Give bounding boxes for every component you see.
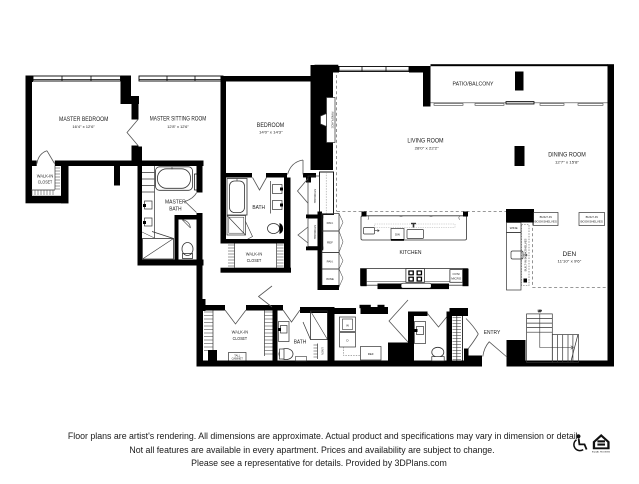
svg-text:WALK-IN: WALK-IN [246,252,263,257]
svg-text:Floor plans are artist's rende: Floor plans are artist's rendering. All … [68,431,580,441]
svg-text:BOOKSHELVES: BOOKSHELVES [535,220,557,224]
svg-text:CABINET: CABINET [232,357,244,361]
svg-text:DEN: DEN [563,251,577,258]
svg-text:MASTER BEDROOM: MASTER BEDROOM [59,116,108,123]
svg-text:WALK-IN: WALK-IN [232,330,249,335]
svg-text:BATH: BATH [169,206,182,212]
svg-text:BOOKSHELVES: BOOKSHELVES [581,220,603,224]
svg-text:LIVING ROOM: LIVING ROOM [407,138,443,145]
svg-text:16'4" x 12'6": 16'4" x 12'6" [72,124,95,129]
svg-text:DW: DW [395,233,400,237]
svg-text:BATH: BATH [252,205,265,211]
svg-text:WALK-IN: WALK-IN [37,174,54,179]
svg-text:W: W [346,324,349,328]
svg-text:WINE: WINE [326,277,334,281]
svg-text:Not all features are available: Not all features are available in every … [129,445,494,455]
svg-text:UP: UP [538,309,542,313]
svg-text:BUILT-IN: BUILT-IN [540,215,552,219]
svg-text:KITCHEN: KITCHEN [400,250,422,256]
svg-text:REF: REF [327,241,333,245]
svg-text:CLOSET: CLOSET [38,180,53,185]
svg-text:EQUAL HOUSING: EQUAL HOUSING [592,451,610,454]
svg-text:MICRO: MICRO [451,277,462,281]
svg-text:BATH: BATH [294,340,307,346]
svg-text:STORAGE: STORAGE [313,225,317,240]
svg-text:PATIO/BALCONY: PATIO/BALCONY [453,81,494,87]
svg-text:FIREPLACE: FIREPLACE [331,112,335,129]
svg-text:12'7" x 15'8": 12'7" x 15'8" [555,160,580,165]
svg-text:MASTER SITTING ROOM: MASTER SITTING ROOM [150,116,207,123]
svg-text:WINE: WINE [510,226,518,230]
svg-text:CLOSET: CLOSET [247,258,262,263]
svg-text:PAN.: PAN. [327,221,334,225]
svg-text:BEDROOM: BEDROOM [257,122,284,129]
svg-text:CLOSET: CLOSET [233,336,248,341]
svg-text:STORAGE: STORAGE [313,189,317,204]
svg-text:11'10" x 9'6": 11'10" x 9'6" [558,259,582,264]
svg-text:BUILT-IN: BUILT-IN [586,215,598,219]
svg-text:OVN/: OVN/ [453,272,461,276]
svg-text:ENTRY: ENTRY [484,330,501,336]
svg-text:REF: REF [368,352,374,356]
svg-text:12'8" x 12'6": 12'8" x 12'6" [167,124,189,129]
svg-text:14'0" x 14'3": 14'0" x 14'3" [259,130,283,135]
svg-text:Please see a representative fo: Please see a representative for details.… [191,458,447,468]
svg-text:PAN.: PAN. [327,260,334,264]
svg-text:BUILT-IN BOOKSHELVES: BUILT-IN BOOKSHELVES [524,238,528,271]
svg-text:LINEN: LINEN [321,347,325,355]
svg-text:28'0" x 22'2": 28'0" x 22'2" [415,145,440,150]
svg-text:DINING ROOM: DINING ROOM [548,152,586,159]
svg-text:MASTER: MASTER [165,199,186,205]
